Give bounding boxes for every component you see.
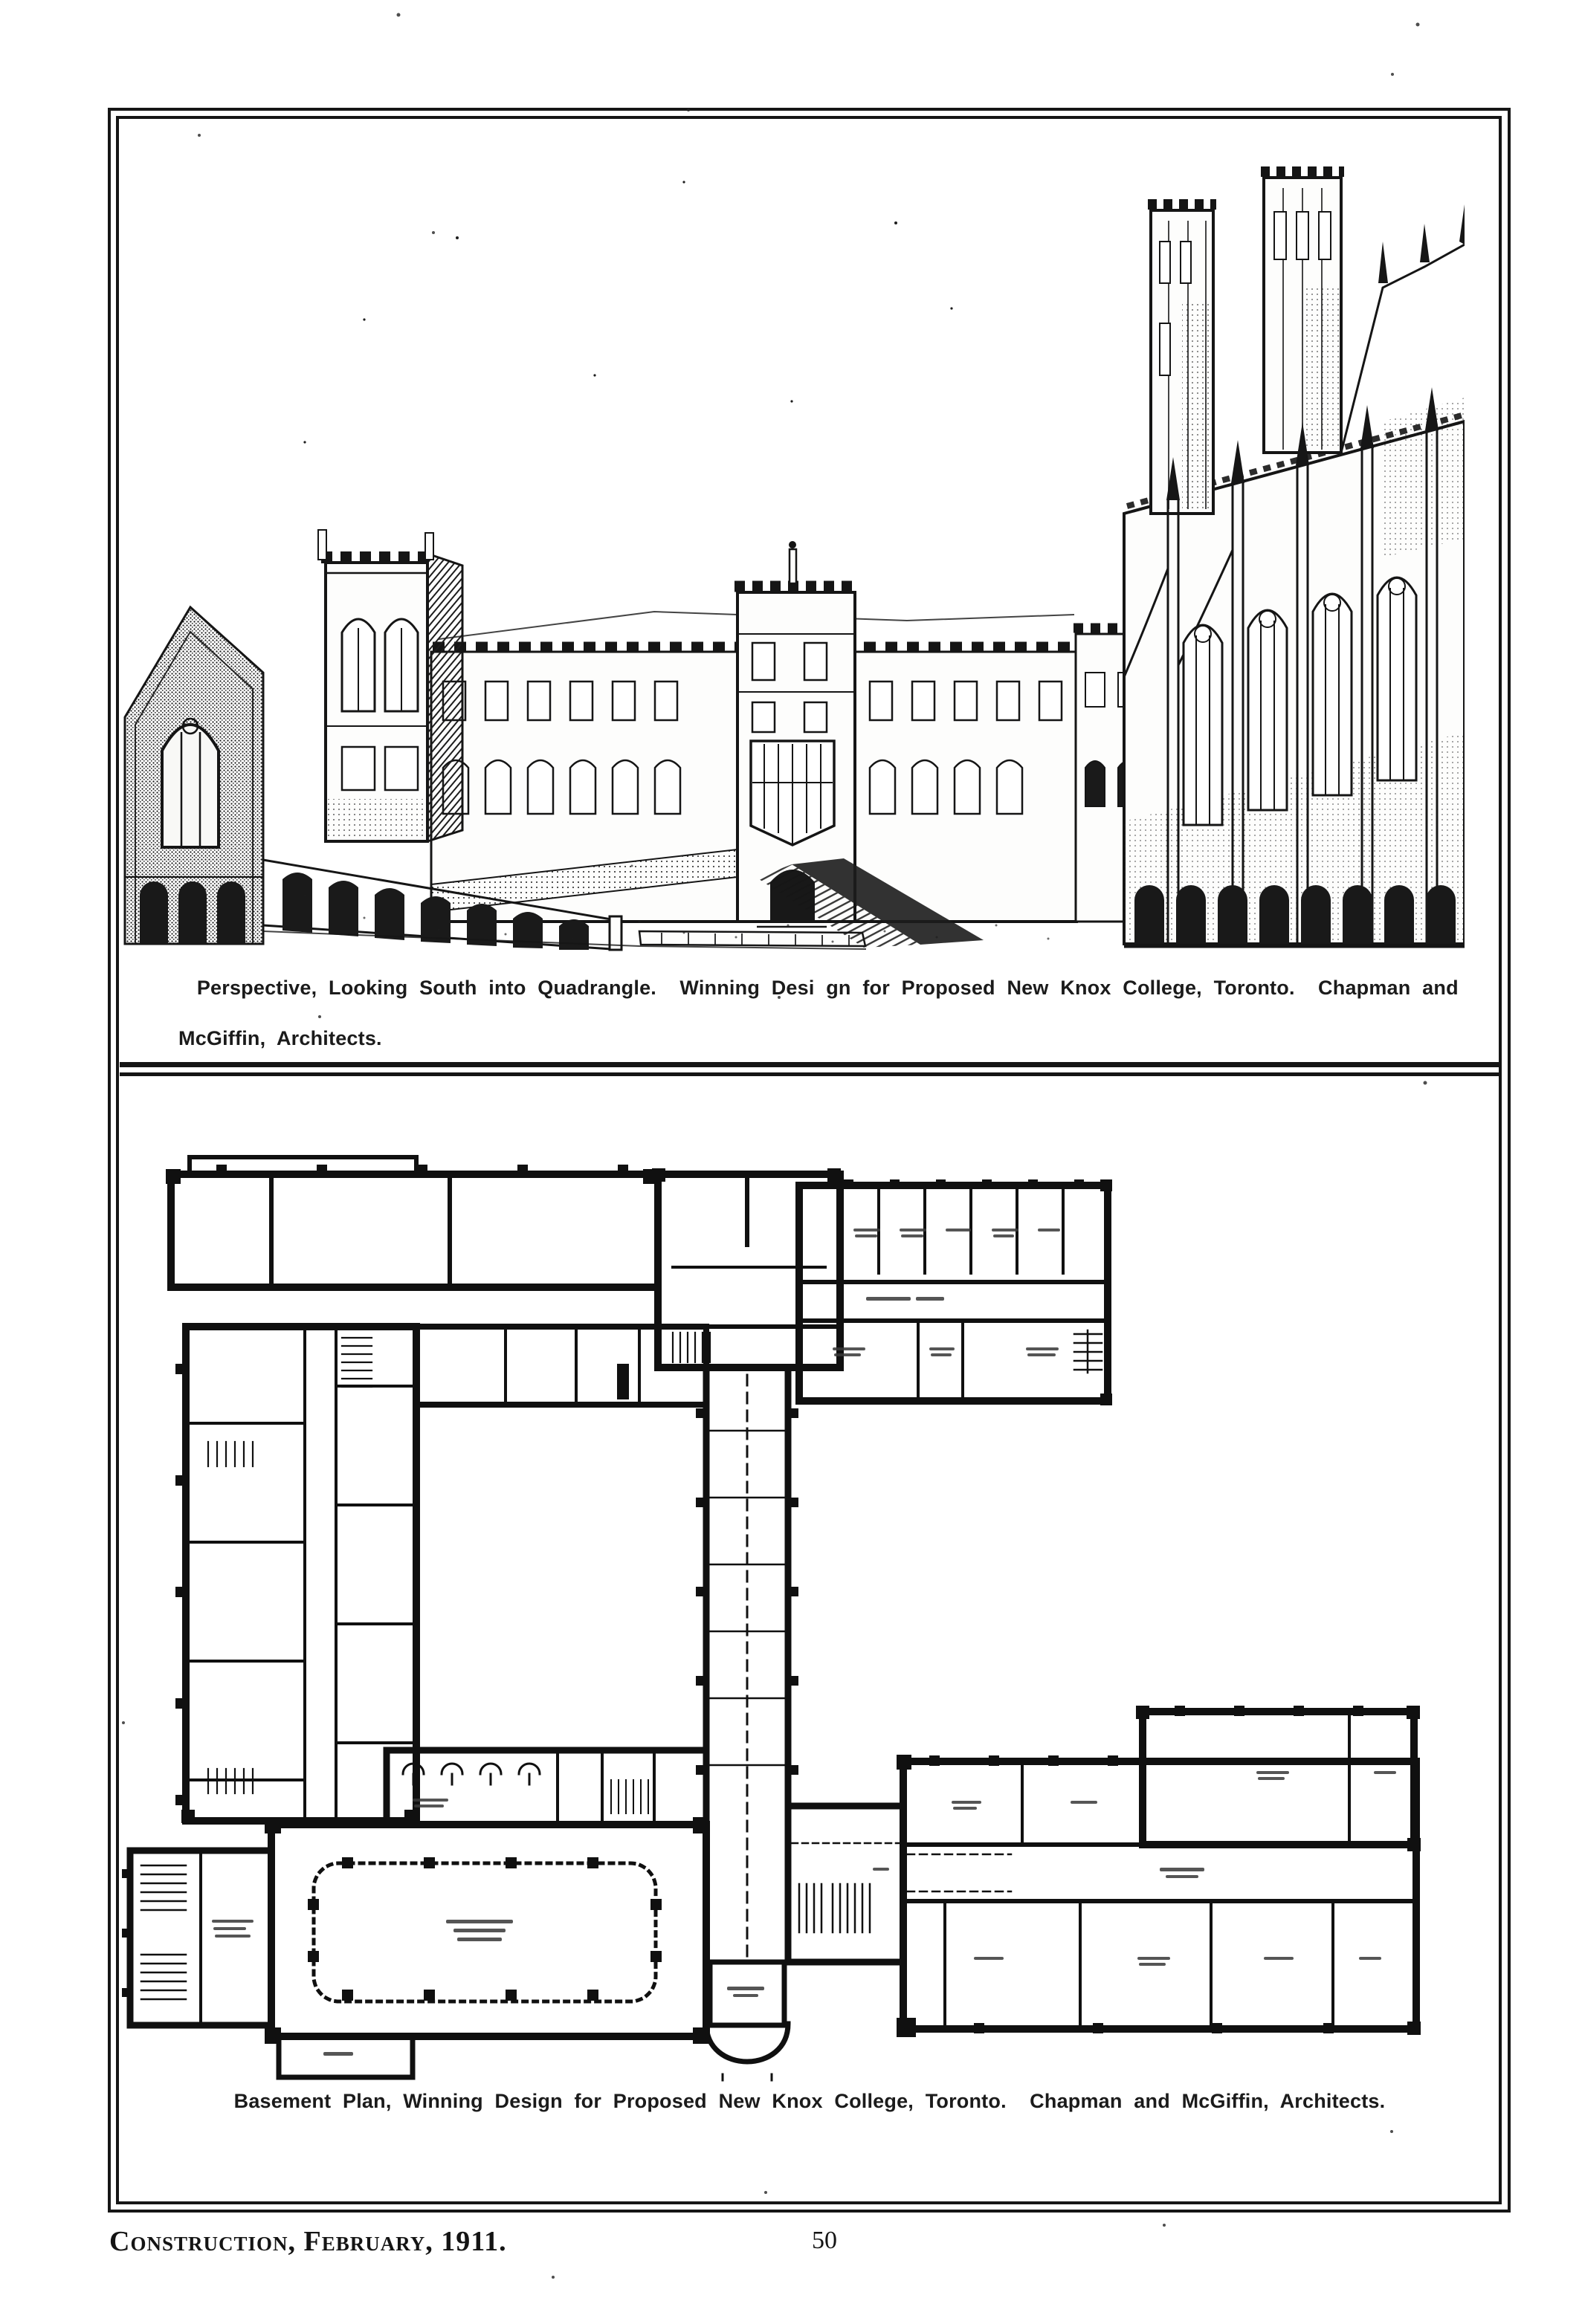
plan-northwest-wing: [166, 1157, 840, 1327]
chapel-block: [1124, 172, 1465, 946]
basement-plan-drawing: [119, 1111, 1465, 2085]
sky-specks: [303, 181, 952, 443]
plan-great-hall: [265, 1817, 709, 2077]
left-hall: [125, 607, 263, 944]
plan-stair-hall: [788, 1806, 903, 1962]
central-tower: [318, 530, 462, 841]
plan-northwest-south-row: [342, 1327, 706, 1405]
perspective-caption-line2: McGiffin, Architects.: [150, 1026, 1488, 1051]
perspective-sketch: [119, 152, 1465, 951]
journal-title: Construction, February, 1911.: [109, 2225, 507, 2258]
illegible-room-labels: [833, 1229, 1060, 1356]
basement-plan-caption: Basement Plan, Winning Design for Propos…: [120, 2088, 1499, 2114]
plan-cloister-walk: [696, 1367, 798, 2083]
perspective-caption: Perspective, Looking South into Quadrang…: [150, 950, 1488, 1101]
panel-divider: [120, 1062, 1499, 1076]
page-number: 50: [812, 2227, 837, 2255]
plan-southeast-wing: [897, 1706, 1421, 2037]
scanned-page: Perspective, Looking South into Quadrang…: [0, 0, 1582, 2324]
plan-tower-block: [652, 1168, 841, 1367]
page-footer: Construction, February, 1911. 50: [0, 2225, 1582, 2270]
plan-northeast-wing: [799, 1179, 1112, 1405]
plan-west-wing: [175, 1327, 418, 1823]
plan-west-annex: [122, 1851, 271, 2025]
plan-lavatory-row: [387, 1750, 706, 1825]
perspective-caption-line1: Perspective, Looking South into Quadrang…: [197, 977, 1459, 999]
